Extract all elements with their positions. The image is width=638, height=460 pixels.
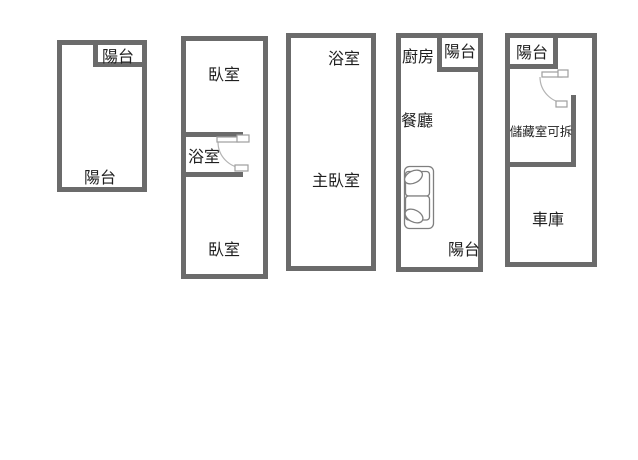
room-label-bedroom-top: 臥室 [208,67,240,83]
room-label-bathroom: 浴室 [188,149,220,165]
room-label-master-bedroom: 主臥室 [312,173,360,189]
unit-2-bathroom-bottom-wall [181,172,243,177]
room-label-balcony-main: 陽台 [84,170,116,186]
unit-4-balcony-wall [437,67,483,72]
unit-5-balcony-wall [505,64,558,69]
floor-plan-canvas: 陽台 陽台 臥室 浴室 臥室 浴室 主臥室 廚房 陽台 餐廳 陽台 陽台 儲藏室… [0,0,638,460]
unit-2-bathroom-top-wall [181,132,243,137]
unit-5-storage-bottom-wall [505,162,576,167]
room-label-balcony-top: 陽台 [444,44,476,60]
room-label-storage-removable: 儲藏室可拆 [510,126,573,139]
room-label-dining-room: 餐廳 [401,113,433,129]
room-label-balcony-bottom: 陽台 [448,242,480,258]
room-label-garage: 車庫 [532,212,564,228]
room-label-kitchen: 廚房 [402,49,434,65]
room-label-balcony: 陽台 [516,45,548,61]
unit-3-outer-wall [286,33,376,271]
room-label-bathroom: 浴室 [328,51,360,67]
room-label-balcony-top: 陽台 [102,49,134,65]
room-label-bedroom-bottom: 臥室 [208,242,240,258]
